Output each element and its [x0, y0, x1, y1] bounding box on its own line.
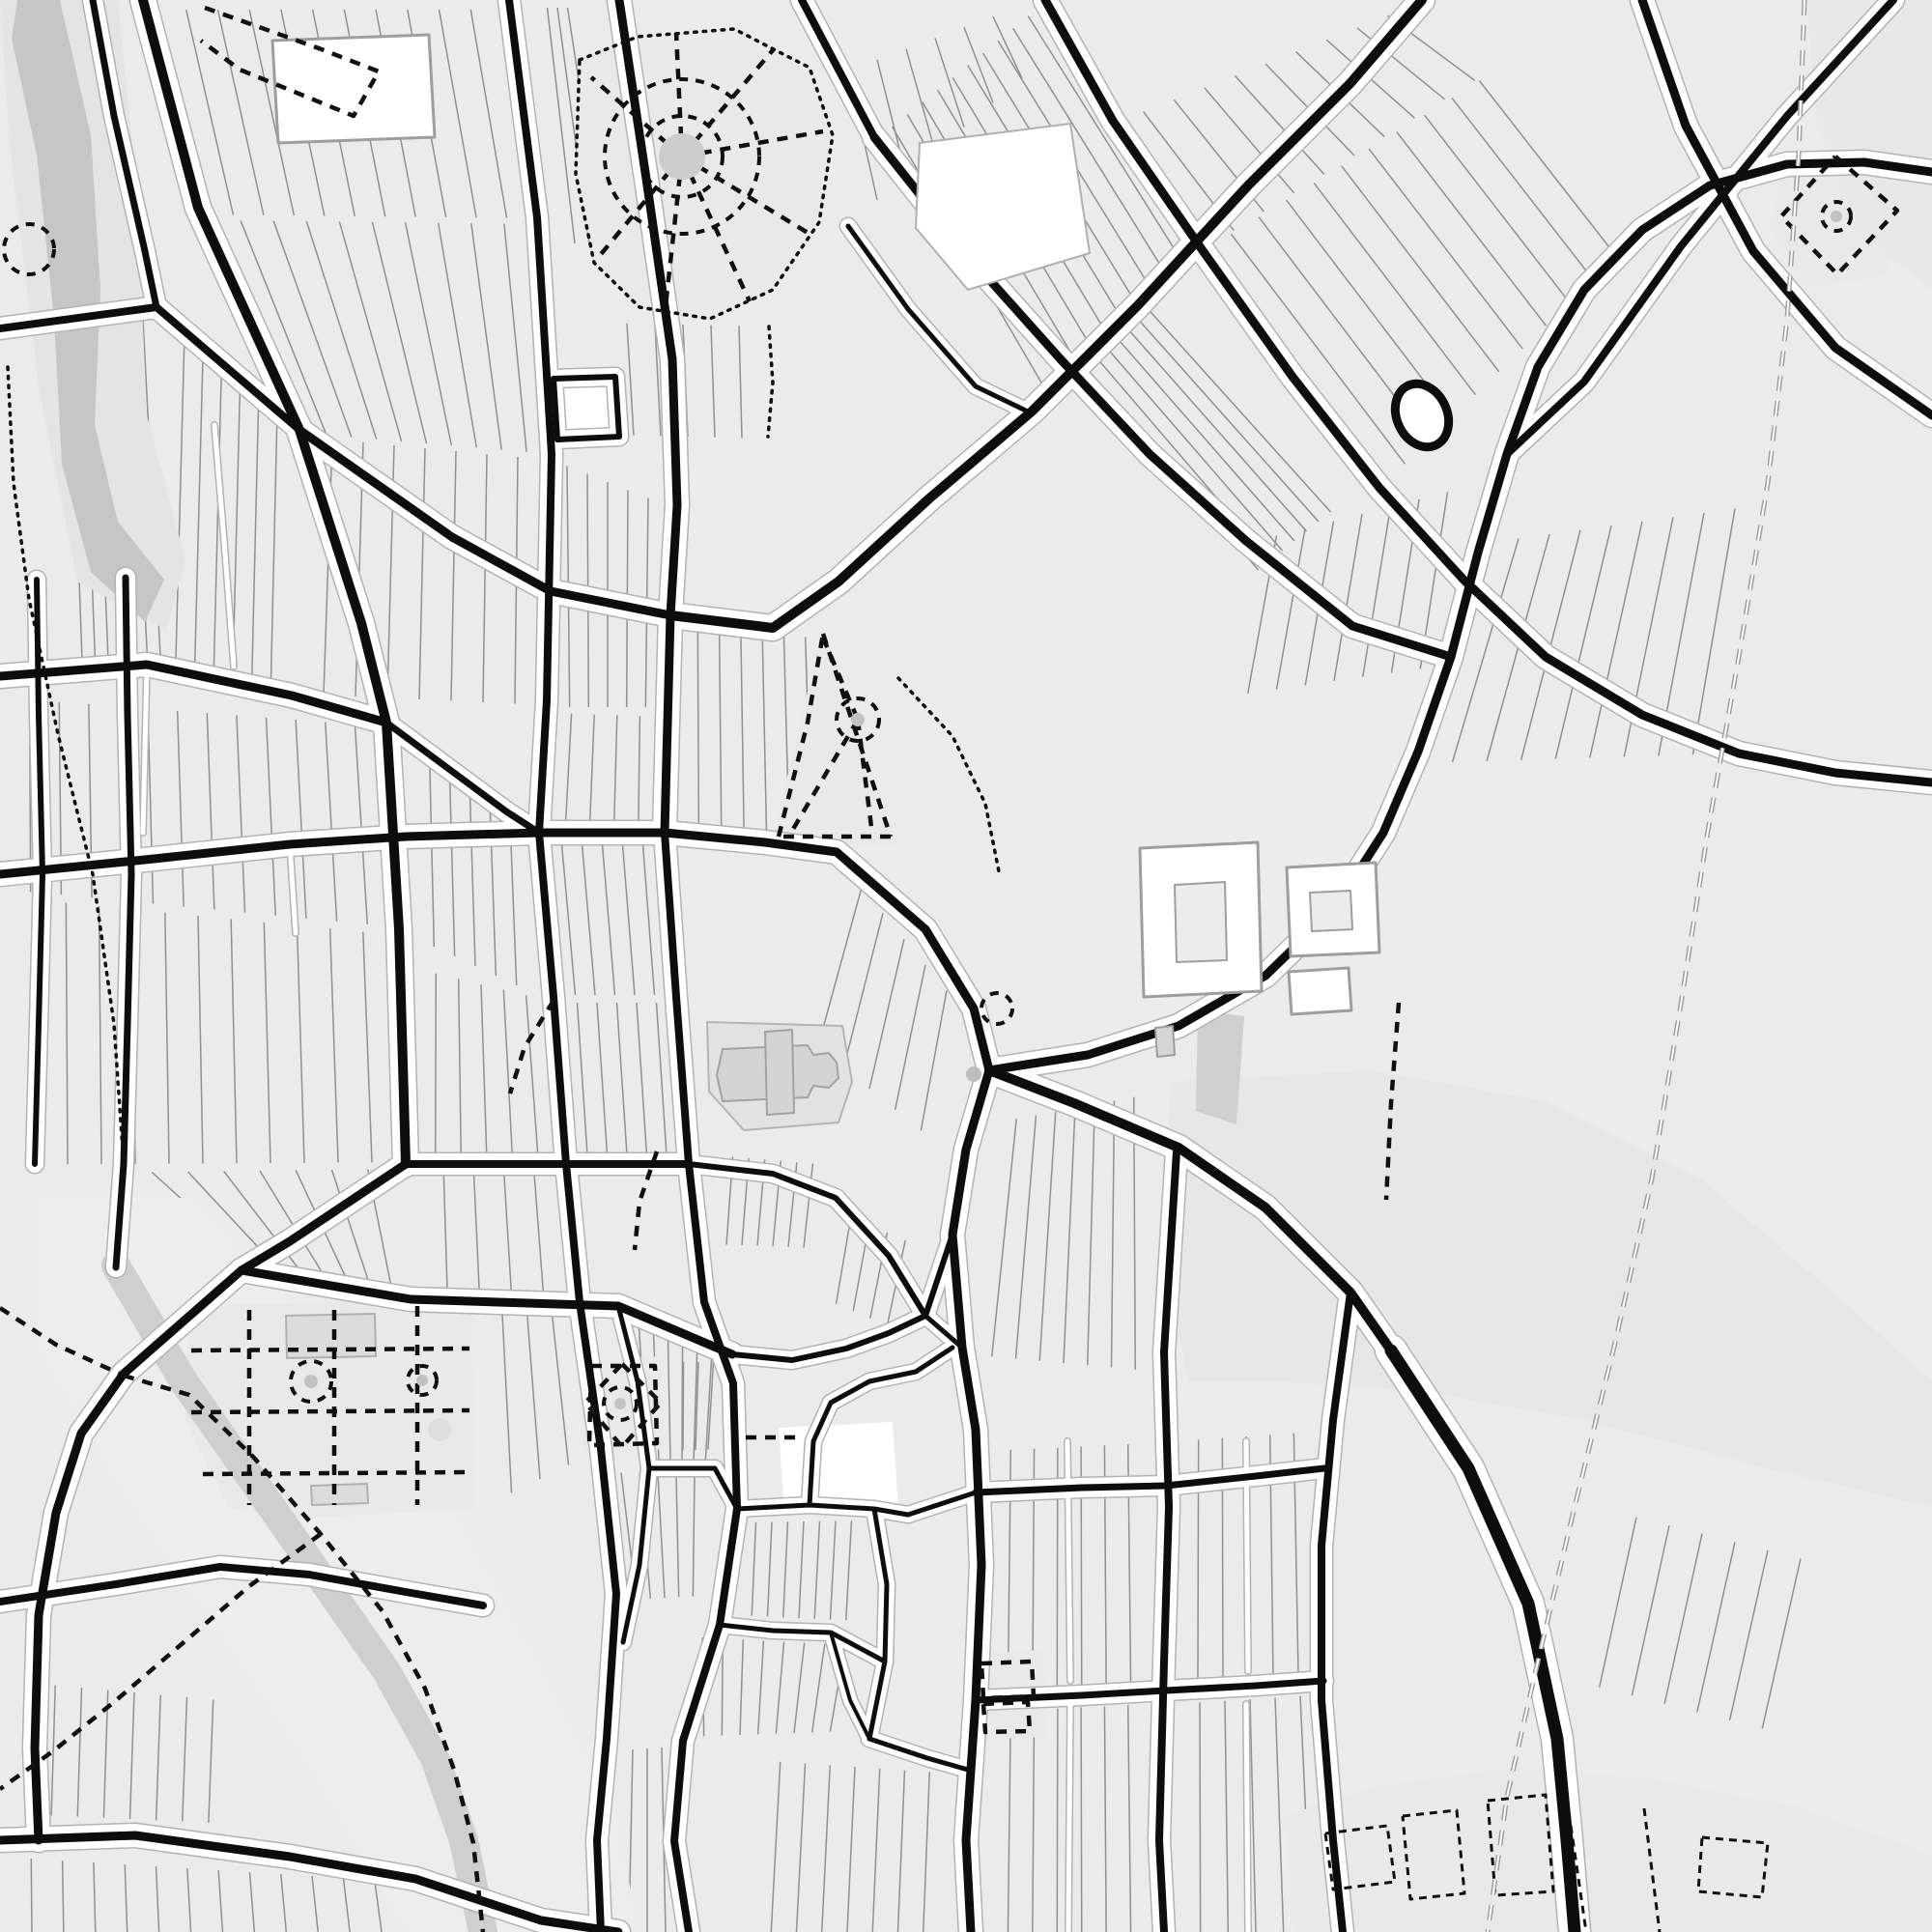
city-map[interactable]: [0, 0, 1932, 1932]
map-canvas[interactable]: [0, 0, 1932, 1932]
